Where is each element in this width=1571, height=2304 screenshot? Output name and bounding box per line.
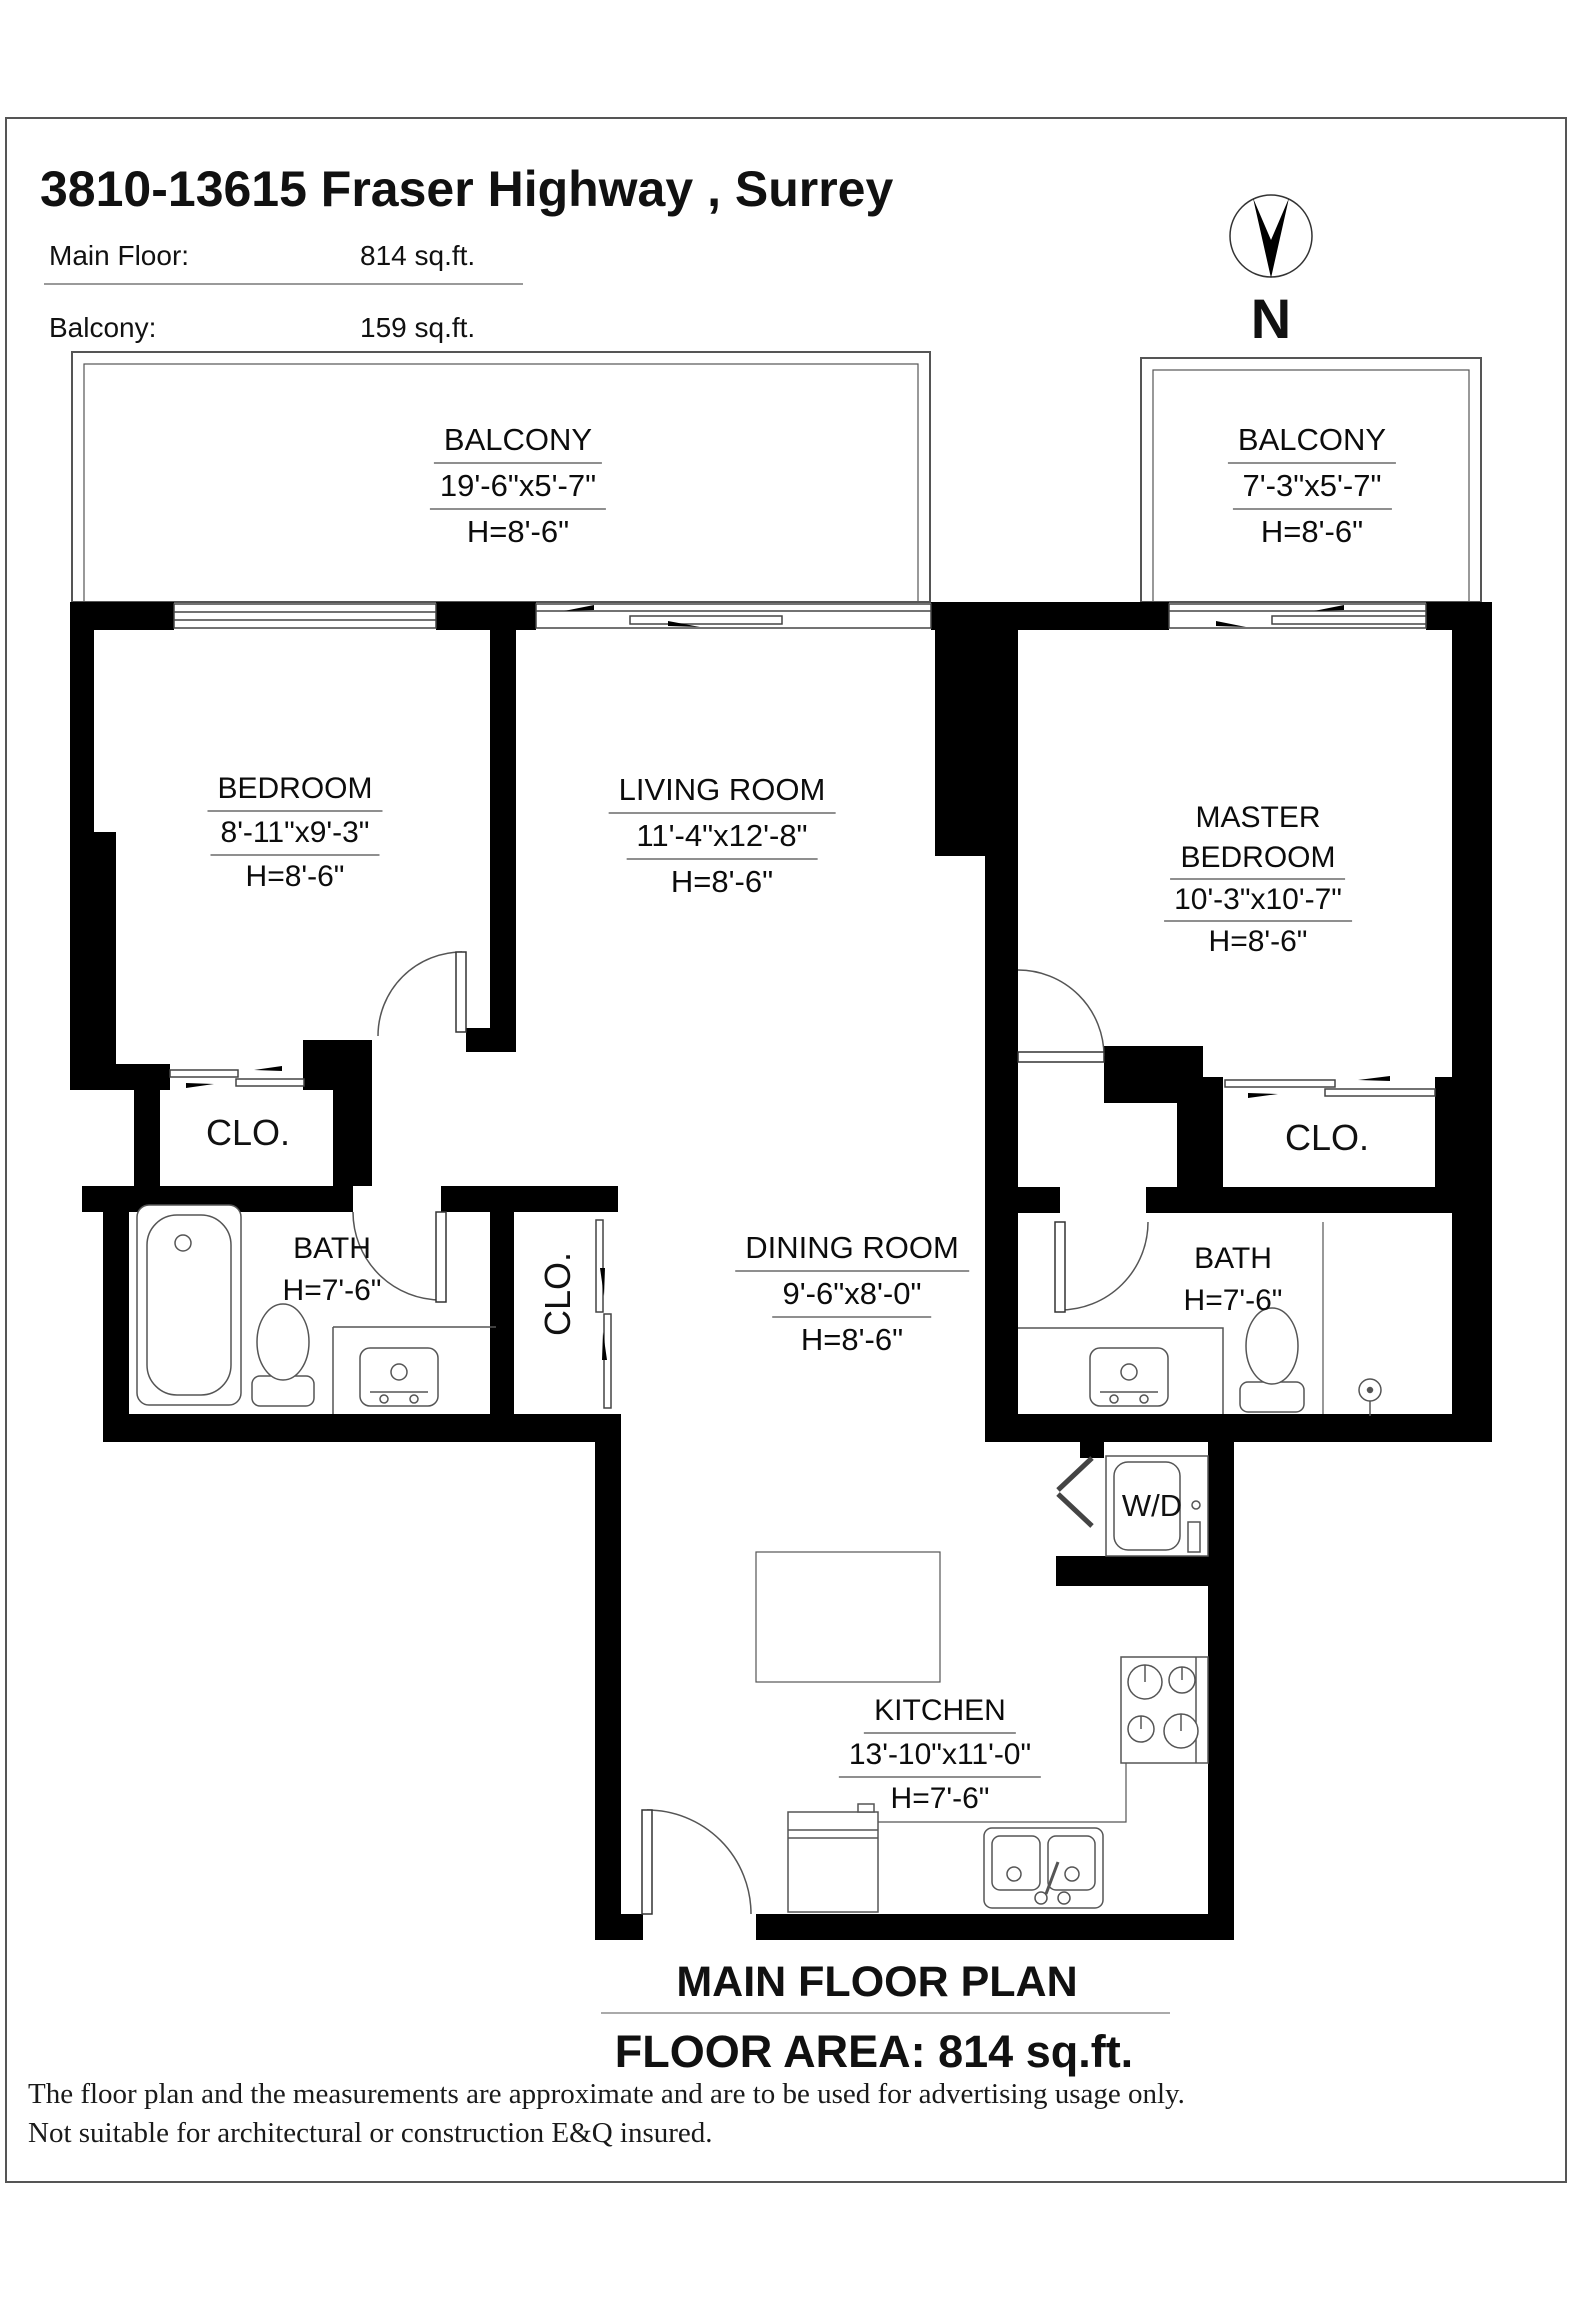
kitchen-island: [756, 1552, 940, 1682]
main-floor-value: 814 sq.ft.: [360, 240, 475, 272]
living-room-slider-door: [536, 604, 931, 628]
master-bedroom-name1: MASTER: [1195, 801, 1320, 834]
kitchen-name: KITCHEN: [864, 1690, 1016, 1734]
master-bedroom-dims: 10'-3"x10'-7": [1164, 880, 1352, 922]
room-label-balcony-left: BALCONY 19'-6"x5'-7" H=8'-6": [430, 418, 606, 554]
closet-left-bypass-doors: [170, 1066, 304, 1088]
bedroom-name: BEDROOM: [207, 768, 382, 812]
bedroom-height: H=8'-6": [246, 860, 345, 893]
floor-area-label: FLOOR AREA: 814 sq.ft.: [615, 2026, 1133, 2078]
dining-room-height: H=8'-6": [801, 1322, 903, 1357]
balcony-left-name: BALCONY: [434, 418, 602, 464]
balcony-left-dims: 19'-6"x5'-7": [430, 464, 606, 510]
disclaimer-line1: The floor plan and the measurements are …: [28, 2078, 1185, 2111]
bedroom-window: [174, 604, 436, 628]
dining-room-dims: 9'-6"x8'-0": [773, 1272, 932, 1318]
laundry-bifold-door: [1058, 1458, 1092, 1526]
closet-right-label: CLO.: [1285, 1117, 1369, 1159]
living-room-height: H=8'-6": [671, 864, 773, 899]
floor-plan-page: { "header": { "title": "3810-13615 Frase…: [0, 0, 1571, 2304]
disclaimer-line2: Not suitable for architectural or constr…: [28, 2117, 713, 2150]
stove: [1121, 1657, 1208, 1763]
master-slider-door: [1169, 604, 1426, 628]
main-floor-label: Main Floor:: [49, 240, 189, 272]
room-label-living-room: LIVING ROOM 11'-4"x12'-8" H=8'-6": [609, 768, 836, 904]
closet-left-label: CLO.: [206, 1112, 290, 1154]
kitchen-dims: 13'-10"x11'-0": [839, 1734, 1041, 1778]
balcony-area-value: 159 sq.ft.: [360, 312, 475, 344]
closet-right-bypass-doors: [1225, 1076, 1435, 1098]
header-divider: [44, 283, 523, 285]
balcony-area-label: Balcony:: [49, 312, 156, 344]
vanity-sink-left: [333, 1327, 496, 1414]
room-label-kitchen: KITCHEN 13'-10"x11'-0" H=7'-6": [839, 1690, 1041, 1820]
balcony-right-name: BALCONY: [1228, 418, 1396, 464]
room-label-master-bedroom: MASTER BEDROOM 10'-3"x10'-7" H=8'-6": [1164, 798, 1352, 962]
master-bedroom-door: [1018, 970, 1104, 1062]
balcony-left-height: H=8'-6": [467, 514, 569, 549]
room-label-balcony-right: BALCONY 7'-3"x5'-7" H=8'-6": [1228, 418, 1396, 554]
bath-left-height: H=7'-6": [283, 1274, 382, 1307]
plan-title: MAIN FLOOR PLAN: [676, 1958, 1077, 2007]
room-label-bedroom: BEDROOM 8'-11"x9'-3" H=8'-6": [207, 768, 382, 898]
shower-head-icon: [1359, 1379, 1381, 1416]
bath-right-name: BATH: [1194, 1242, 1272, 1275]
room-label-dining-room: DINING ROOM 9'-6"x8'-0" H=8'-6": [735, 1226, 969, 1362]
bedroom-dims: 8'-11"x9'-3": [211, 812, 380, 856]
north-arrow-icon: [1230, 195, 1312, 278]
room-label-bath-right: BATH H=7'-6": [1184, 1238, 1283, 1322]
vanity-sink-right: [1018, 1328, 1223, 1414]
hall-closet-label: CLO.: [537, 1252, 579, 1336]
refrigerator: [788, 1804, 878, 1912]
room-label-bath-left: BATH H=7'-6": [283, 1228, 382, 1312]
entry-door: [642, 1810, 751, 1914]
north-label: N: [1251, 286, 1291, 351]
kitchen-sink: [984, 1828, 1103, 1908]
living-room-dims: 11'-4"x12'-8": [626, 814, 817, 860]
bathtub: [137, 1205, 241, 1405]
plan-title-divider: [601, 2012, 1170, 2014]
hall-closet-bypass-doors: [596, 1220, 611, 1408]
balcony-right-height: H=8'-6": [1261, 514, 1363, 549]
master-bedroom-height: H=8'-6": [1209, 925, 1308, 958]
living-room-name: LIVING ROOM: [609, 768, 836, 814]
toilet-left: [252, 1304, 314, 1406]
page-title: 3810-13615 Fraser Highway , Surrey: [40, 160, 893, 218]
toilet-right: [1240, 1308, 1304, 1412]
dining-room-name: DINING ROOM: [735, 1226, 969, 1272]
bath-left-name: BATH: [293, 1232, 371, 1265]
laundry-label: W/D: [1122, 1488, 1182, 1524]
master-bedroom-name2: BEDROOM: [1170, 838, 1345, 880]
balcony-right-dims: 7'-3"x5'-7": [1233, 464, 1392, 510]
bath-right-height: H=7'-6": [1184, 1284, 1283, 1317]
kitchen-height: H=7'-6": [891, 1782, 990, 1815]
bath-right-door: [1055, 1222, 1148, 1312]
bedroom-door: [378, 952, 466, 1036]
